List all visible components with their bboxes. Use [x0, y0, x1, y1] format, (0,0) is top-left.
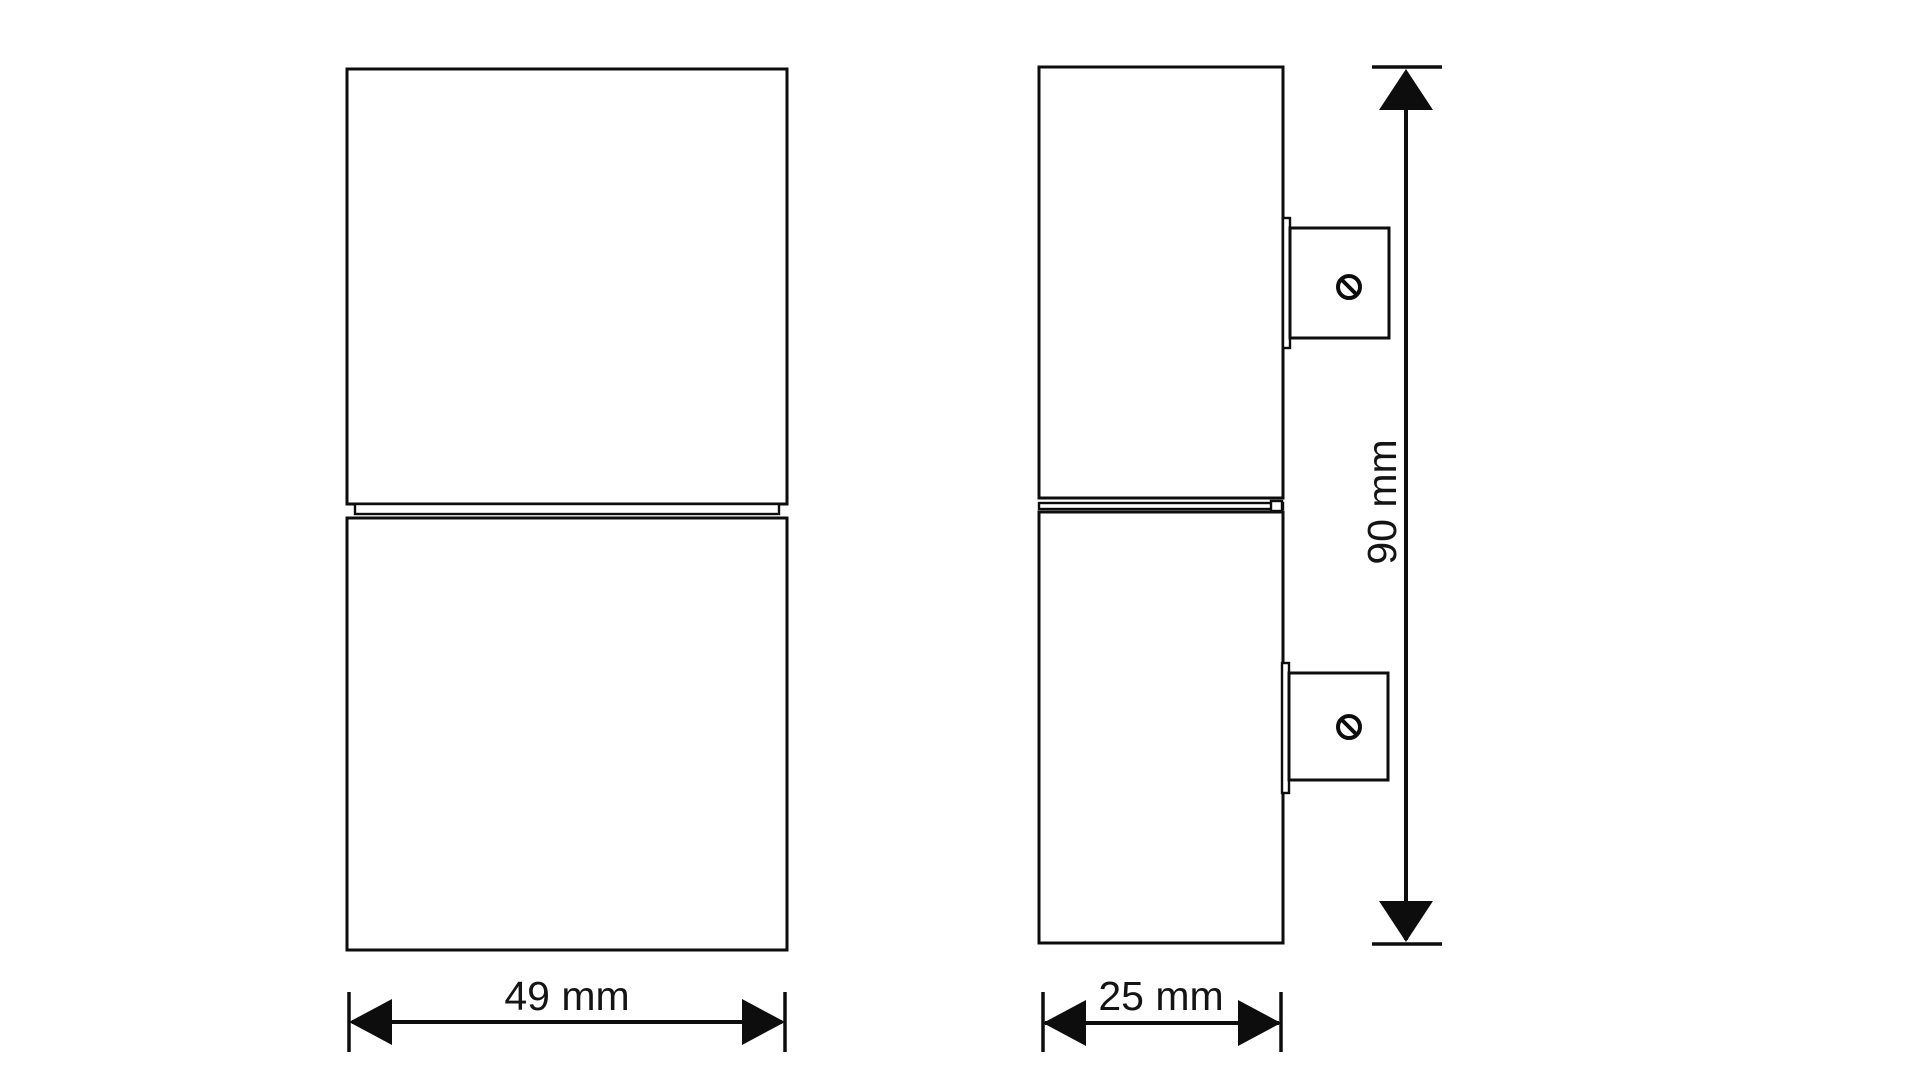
front-joint-lip: [355, 504, 779, 514]
front-view: [347, 69, 787, 950]
lower-mount-bracket: [1282, 663, 1388, 793]
side-top-section: [1039, 67, 1283, 498]
front-bottom-section: [347, 518, 787, 950]
depth-dimension-label: 25 mm: [1098, 973, 1223, 1019]
side-joint-band: [1039, 503, 1283, 509]
side-view: [1039, 67, 1389, 943]
front-top-section: [347, 69, 787, 504]
side-joint-notch: [1271, 501, 1282, 511]
arrowhead-down-icon: [1379, 901, 1433, 942]
arrowhead-left-icon: [1043, 1000, 1086, 1046]
dimension-drawing: 49 mm 25 mm 90 mm: [0, 0, 1920, 1079]
depth-dimension: 25 mm: [1043, 973, 1281, 1052]
arrowhead-right-icon: [742, 999, 785, 1045]
screw-slot-icon: [1338, 716, 1360, 738]
side-bottom-section: [1039, 512, 1283, 943]
arrowhead-left-icon: [349, 999, 392, 1045]
arrowhead-up-icon: [1379, 69, 1433, 110]
width-dimension: 49 mm: [349, 973, 785, 1052]
arrowhead-right-icon: [1238, 1000, 1281, 1046]
height-dimension: 90 mm: [1359, 67, 1442, 944]
height-dimension-label: 90 mm: [1359, 439, 1405, 564]
upper-mount-bracket: [1283, 218, 1389, 348]
technical-drawing-page: 49 mm 25 mm 90 mm: [0, 0, 1920, 1079]
width-dimension-label: 49 mm: [504, 973, 629, 1019]
screw-slot-icon: [1338, 276, 1360, 298]
